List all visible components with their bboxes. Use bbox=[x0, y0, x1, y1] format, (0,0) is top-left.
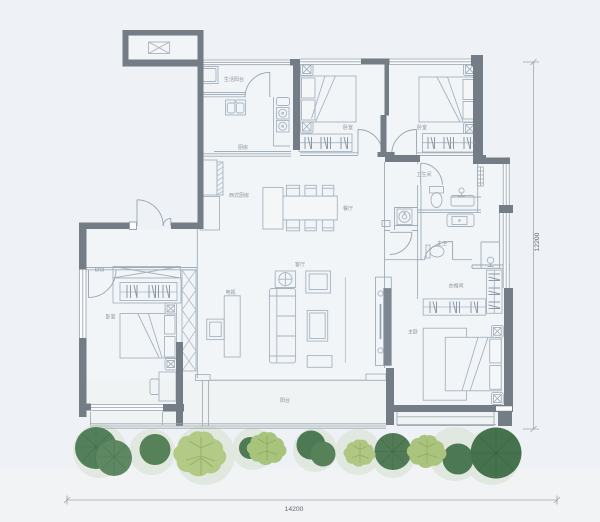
svg-text:主卧: 主卧 bbox=[408, 329, 418, 336]
svg-text:阳台: 阳台 bbox=[280, 397, 290, 404]
svg-text:卧室: 卧室 bbox=[105, 314, 115, 321]
svg-text:客厅: 客厅 bbox=[295, 261, 305, 268]
svg-text:厨房: 厨房 bbox=[238, 144, 248, 151]
svg-text:卧室: 卧室 bbox=[417, 124, 427, 131]
svg-text:电视: 电视 bbox=[225, 289, 235, 296]
svg-text:12200: 12200 bbox=[534, 232, 541, 251]
svg-text:卫生间: 卫生间 bbox=[416, 171, 431, 178]
svg-text:西式厨房: 西式厨房 bbox=[229, 192, 249, 199]
svg-text:生活阳台: 生活阳台 bbox=[224, 76, 244, 83]
svg-text:14200: 14200 bbox=[285, 506, 304, 513]
svg-text:衣帽间: 衣帽间 bbox=[448, 283, 463, 290]
svg-text:餐厅: 餐厅 bbox=[343, 205, 353, 212]
svg-text:主卫: 主卫 bbox=[437, 240, 447, 247]
svg-text:卧室: 卧室 bbox=[343, 124, 353, 131]
